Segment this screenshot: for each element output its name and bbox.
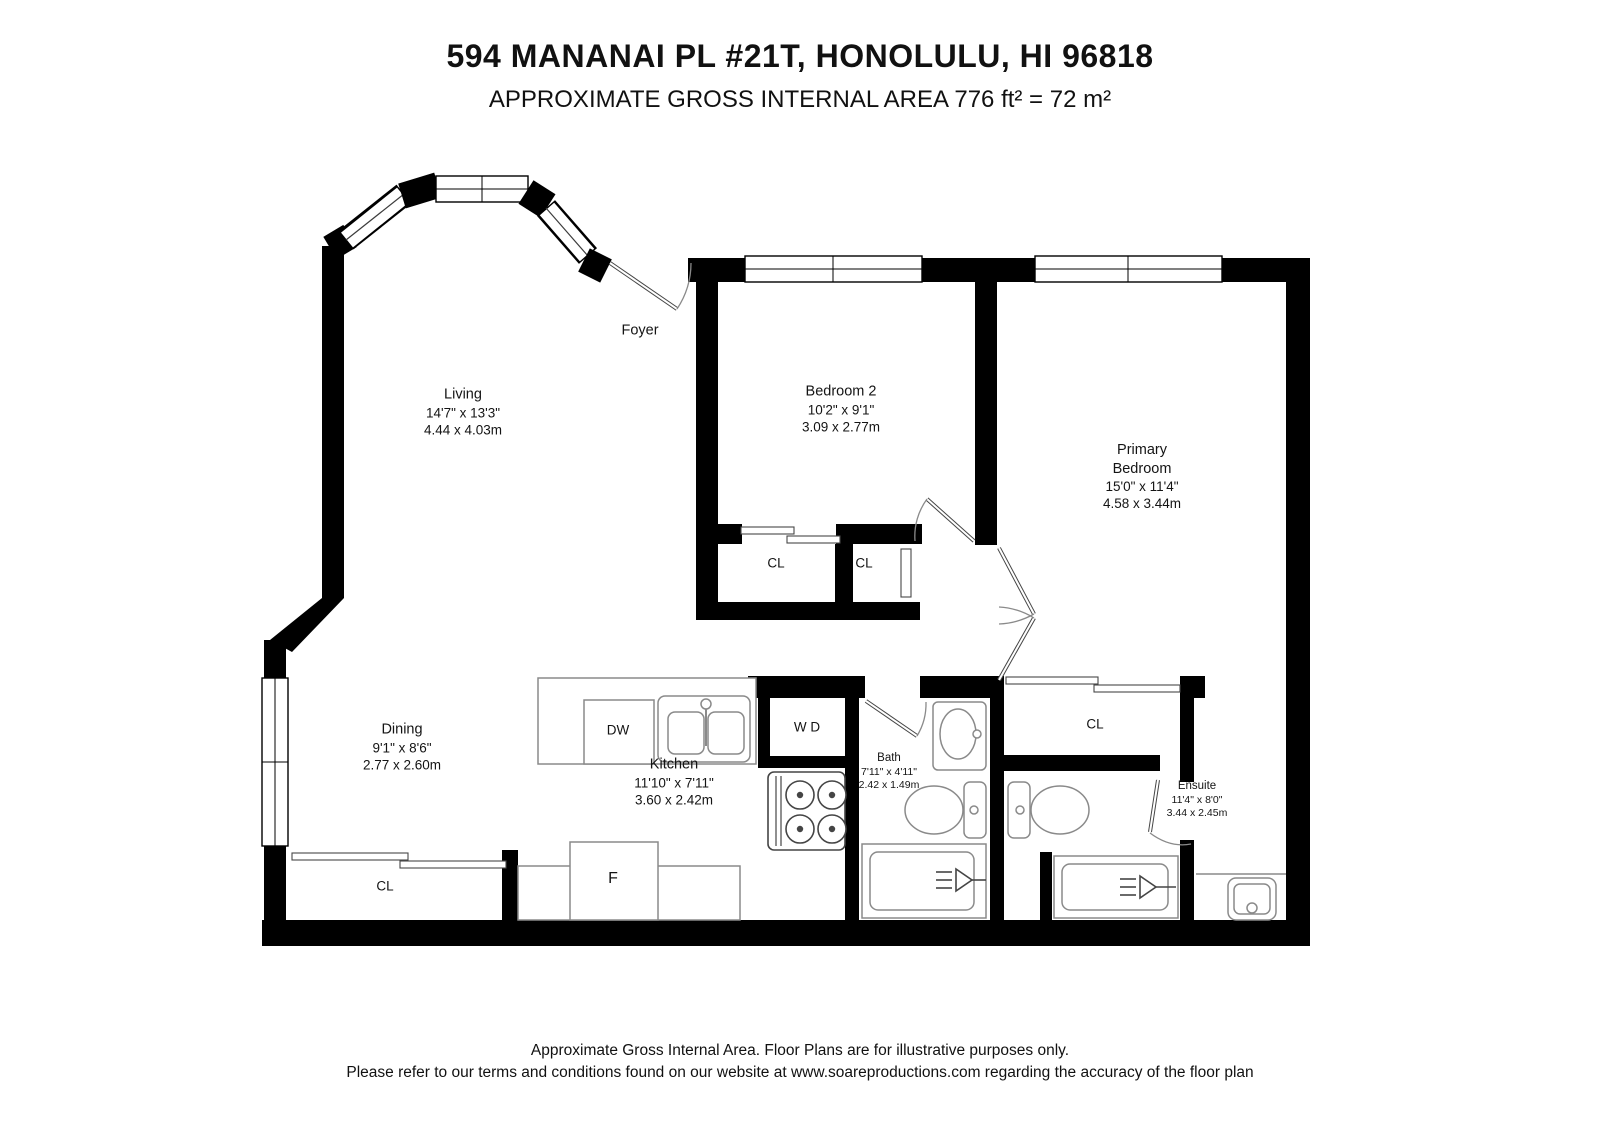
primary-dims-ft: 15'0" x 11'4" — [1103, 478, 1181, 495]
small-closet-door-panel — [901, 549, 911, 597]
living-dims-m: 4.44 x 4.03m — [424, 421, 502, 438]
room-label-dining: Dining 9'1" x 8'6" 2.77 x 2.60m — [363, 720, 441, 773]
closet-label-bedroom2-large: CL — [767, 556, 784, 571]
kitchen-dims-m: 3.60 x 2.42m — [634, 791, 714, 808]
footer-disclaimer-line2: Please refer to our terms and conditions… — [0, 1064, 1600, 1082]
closet-label-dining: CL — [376, 879, 393, 894]
room-label-bath: Bath 7'11" x 4'11" 2.42 x 1.49m — [859, 751, 920, 793]
bedroom2-dims-ft: 10'2" x 9'1" — [802, 401, 880, 418]
room-label-ensuite: Ensuite 11'4" x 8'0" 3.44 x 2.45m — [1167, 779, 1228, 821]
bedroom2-door — [915, 499, 974, 541]
primary-dims-m: 4.58 x 3.44m — [1103, 496, 1181, 513]
foyer-name: Foyer — [621, 322, 658, 341]
dining-dims-ft: 9'1" x 8'6" — [363, 739, 441, 756]
floorplan-page: 594 MANANAI PL #21T, HONOLULU, HI 96818 … — [0, 0, 1600, 1130]
ensuite-dims-ft: 11'4" x 8'0" — [1167, 794, 1228, 807]
bedroom2-window — [745, 256, 922, 282]
dining-name: Dining — [363, 720, 441, 739]
dining-dims-m: 2.77 x 2.60m — [363, 756, 441, 773]
bedroom2-name: Bedroom 2 — [802, 382, 880, 401]
bedroom2-closet-sliding-door — [741, 527, 840, 543]
room-label-kitchen: Kitchen 11'10" x 7'11" 3.60 x 2.42m — [634, 755, 714, 808]
primary-name-line1: Primary — [1103, 441, 1181, 460]
fridge-label: F — [608, 870, 618, 888]
dining-window — [262, 678, 288, 846]
ensuite-shower-tray — [1196, 874, 1286, 920]
bay-window — [330, 176, 606, 271]
primary-double-door — [999, 548, 1034, 680]
bath-name: Bath — [859, 751, 920, 766]
bath-dims-m: 2.42 x 1.49m — [859, 779, 920, 792]
washer-dryer-label: W D — [794, 720, 820, 735]
bedroom2-dims-m: 3.09 x 2.77m — [802, 418, 880, 435]
living-dims-ft: 14'7" x 13'3" — [424, 404, 502, 421]
bath-door — [866, 701, 926, 736]
primary-bedroom-window — [1035, 256, 1222, 282]
dining-closet-sliding-door — [292, 853, 506, 868]
bath-vanity-sink — [933, 702, 986, 770]
primary-name-line2: Bedroom — [1103, 460, 1181, 479]
ensuite-tub — [1054, 856, 1178, 918]
room-label-living: Living 14'7" x 13'3" 4.44 x 4.03m — [424, 385, 502, 438]
primary-closet-sliding-door — [1006, 677, 1180, 692]
closet-label-primary: CL — [1086, 717, 1103, 732]
ensuite-dims-m: 3.44 x 2.45m — [1167, 807, 1228, 820]
entry-door — [610, 263, 691, 309]
kitchen-dims-ft: 11'10" x 7'11" — [634, 774, 714, 791]
bath-tub — [862, 844, 986, 918]
ensuite-toilet — [1008, 782, 1089, 838]
room-label-bedroom2: Bedroom 2 10'2" x 9'1" 3.09 x 2.77m — [802, 382, 880, 435]
floorplan-drawing — [0, 0, 1600, 1130]
closet-label-bedroom2-small: CL — [855, 556, 872, 571]
kitchen-sink — [658, 696, 750, 762]
room-label-foyer: Foyer — [621, 322, 658, 341]
footer-disclaimer-line1: Approximate Gross Internal Area. Floor P… — [0, 1042, 1600, 1060]
dishwasher-label: DW — [607, 723, 630, 738]
stove — [768, 772, 846, 850]
ensuite-name: Ensuite — [1167, 779, 1228, 794]
room-label-primary-bedroom: Primary Bedroom 15'0" x 11'4" 4.58 x 3.4… — [1103, 441, 1181, 513]
kitchen-name: Kitchen — [634, 755, 714, 774]
living-name: Living — [424, 385, 502, 404]
bath-dims-ft: 7'11" x 4'11" — [859, 766, 920, 779]
